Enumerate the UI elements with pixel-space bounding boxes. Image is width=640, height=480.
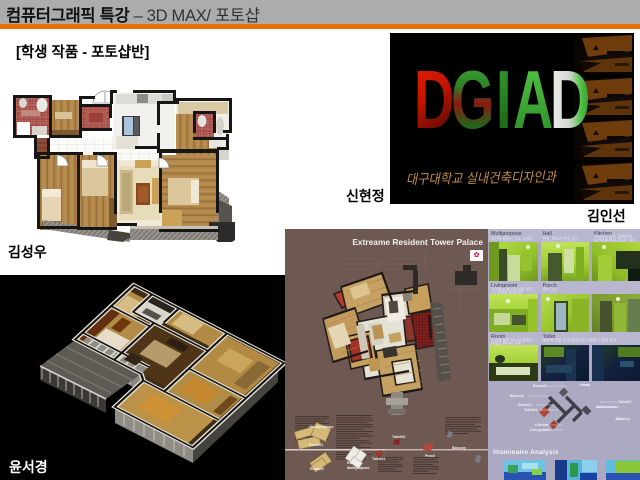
svg-text:Toilet02: Toilet02 (392, 435, 405, 439)
svg-text:A: A (513, 53, 553, 146)
svg-text:1Multipurpose: 1Multipurpose (309, 425, 334, 429)
svg-text:Room02: Room02 (310, 467, 324, 471)
svg-text:Room01: Room01 (309, 443, 323, 447)
svg-text:공간의 활용성 강조, 다용도: 공간의 활용성 강조, 다용도 (491, 236, 534, 241)
svg-text:Kitchen: Kitchen (535, 423, 548, 427)
svg-text:Porch: Porch (425, 454, 435, 458)
svg-text:Livingroom: Livingroom (530, 428, 550, 432)
svg-text:Room02: Room02 (533, 384, 547, 388)
svg-text:D: D (550, 53, 590, 146)
svg-text:Multipurpose: Multipurpose (596, 405, 619, 409)
svg-text:Toilet01: Toilet01 (372, 457, 385, 461)
svg-text:대구대학교 실내건축디자인과: 대구대학교 실내건축디자인과 (406, 169, 558, 187)
svg-text:D: D (414, 53, 454, 146)
svg-text:Balcony: Balcony (452, 446, 466, 450)
svg-text:현관, 복도와 연결 공간: 현관, 복도와 연결 공간 (543, 236, 579, 241)
svg-text:Porch: Porch (580, 383, 590, 387)
svg-text:Balcony: Balcony (510, 394, 524, 398)
svg-text:Kitchen: Kitchen (347, 461, 360, 465)
svg-text:Toilet02: Toilet02 (618, 400, 631, 404)
svg-text:Toilet01: Toilet01 (524, 408, 537, 412)
svg-text:Room01: Room01 (518, 403, 532, 407)
svg-text:G: G (451, 53, 494, 146)
svg-text:I: I (496, 53, 512, 146)
svg-text:Multipurpose: Multipurpose (347, 466, 370, 470)
svg-text:파란색 조명, 타일 마감으로 시원한 느낌의 공간: 파란색 조명, 타일 마감으로 시원한 느낌의 공간 (543, 338, 617, 343)
svg-text:Illuminaire Analysis: Illuminaire Analysis (493, 449, 559, 456)
svg-text:전이 공간: 전이 공간 (543, 287, 559, 292)
svg-text:Balcony: Balcony (616, 417, 630, 421)
